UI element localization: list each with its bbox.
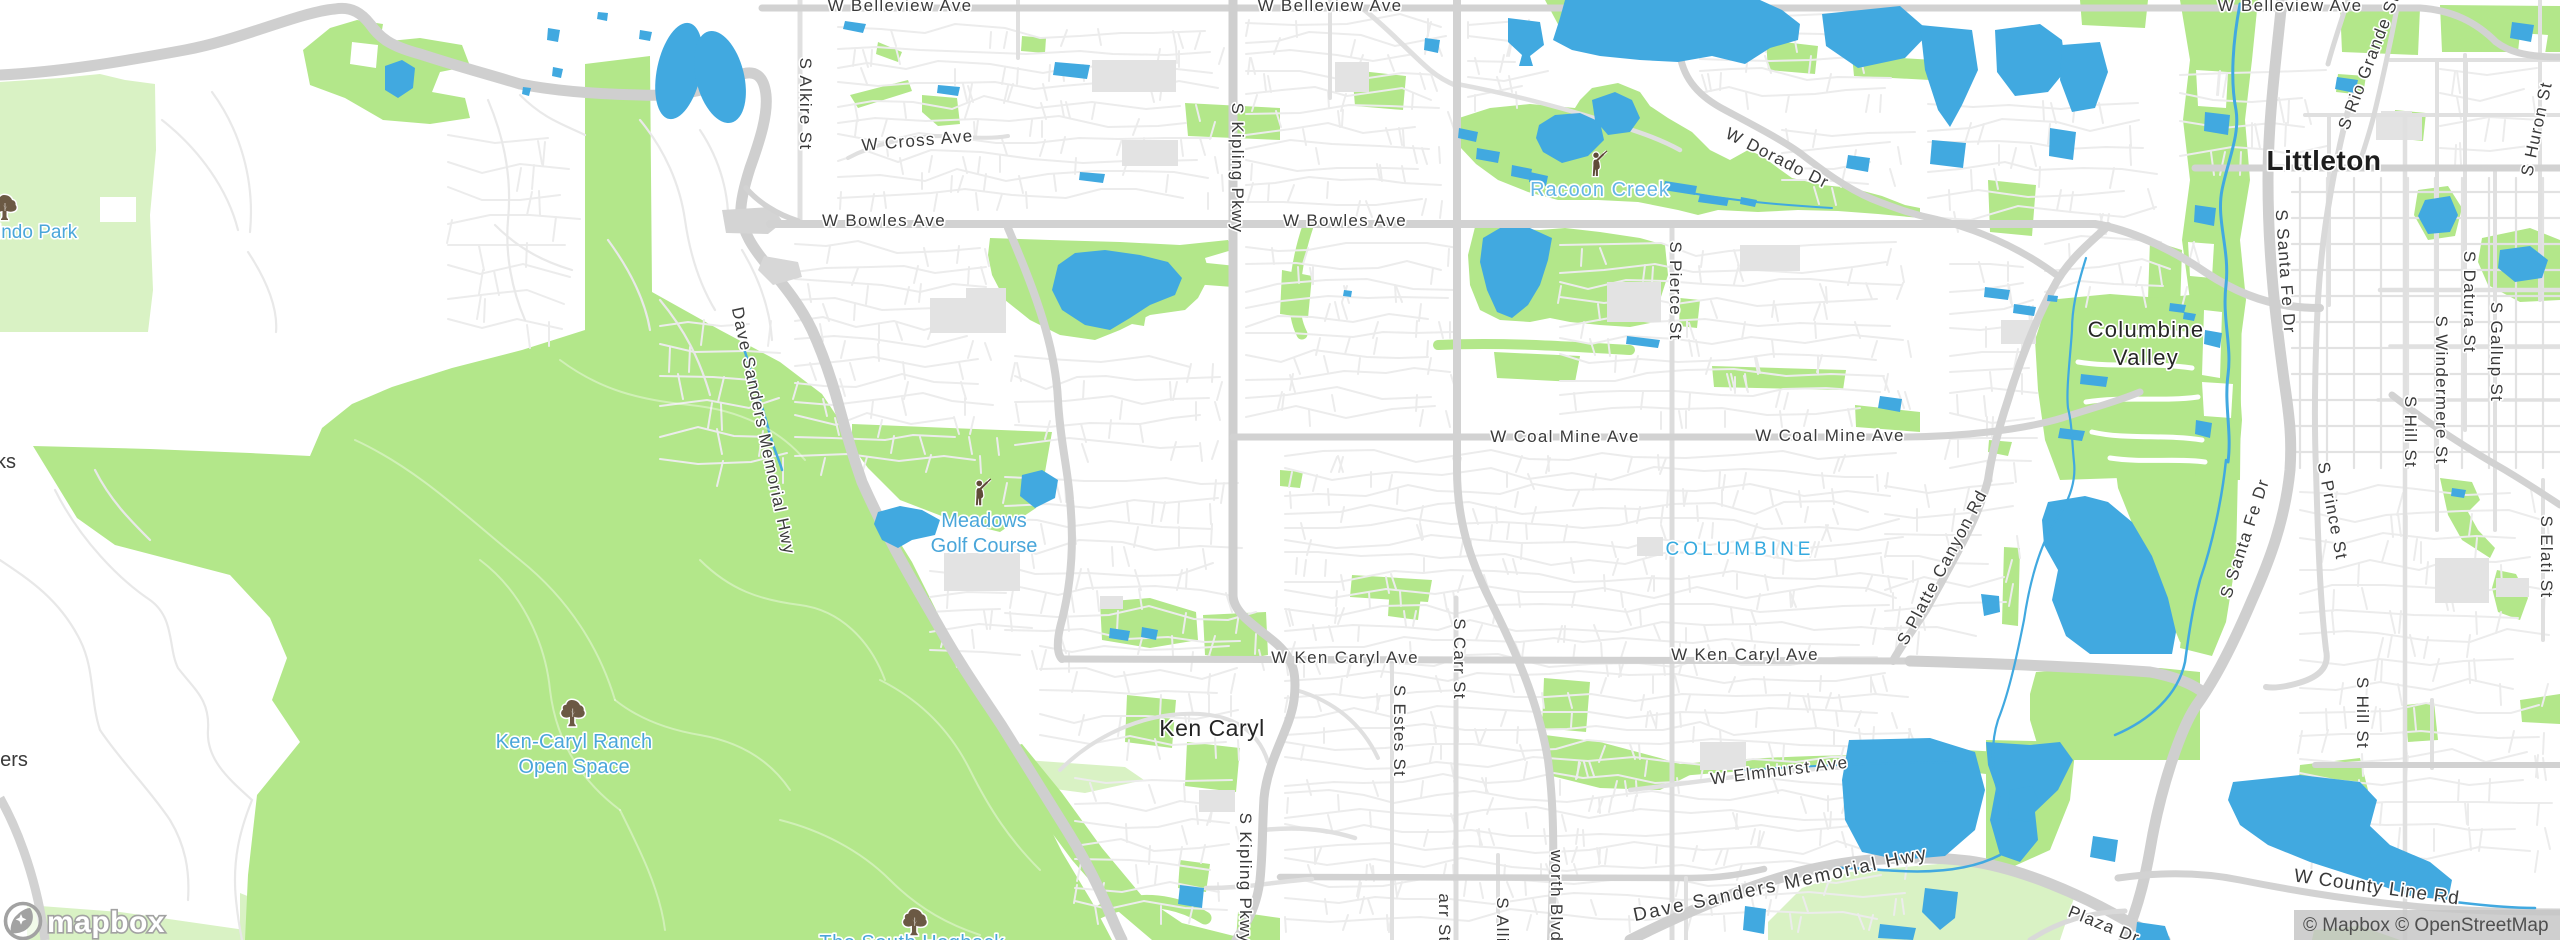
- svg-text:W Belleview Ave: W Belleview Ave: [2218, 0, 2363, 15]
- svg-text:S Windermere St: S Windermere St: [2432, 316, 2451, 465]
- svg-text:Racoon Creek: Racoon Creek: [1530, 179, 1670, 201]
- svg-text:S Gallup St: S Gallup St: [2487, 302, 2506, 402]
- svg-text:W Bowles Ave: W Bowles Ave: [822, 211, 946, 230]
- svg-text:© Mapbox © OpenStreetMap: © Mapbox © OpenStreetMap: [2303, 915, 2549, 936]
- svg-text:W Coal Mine Ave: W Coal Mine Ave: [1755, 426, 1905, 445]
- svg-text:ers: ers: [0, 749, 28, 771]
- svg-text:S Estes St: S Estes St: [1390, 685, 1409, 777]
- svg-text:W Coal Mine Ave: W Coal Mine Ave: [1490, 427, 1640, 446]
- svg-text:The South Hogback: The South Hogback: [819, 932, 1005, 940]
- svg-text:S Allis: S Allis: [1493, 897, 1512, 940]
- svg-text:Ken Caryl: Ken Caryl: [1159, 715, 1264, 741]
- svg-text:S Datura St: S Datura St: [2460, 251, 2479, 353]
- svg-text:worth Blvd: worth Blvd: [1547, 849, 1566, 940]
- svg-text:S Kipling Pkwy: S Kipling Pkwy: [1236, 813, 1255, 940]
- svg-text:W Belleview Ave: W Belleview Ave: [828, 0, 973, 15]
- svg-text:Columbine: Columbine: [2088, 317, 2205, 342]
- svg-text:arr St: arr St: [1435, 893, 1454, 940]
- svg-text:Valley: Valley: [2113, 345, 2179, 370]
- svg-text:W Bowles Ave: W Bowles Ave: [1283, 211, 1407, 230]
- svg-text:Ken-Caryl Ranch: Ken-Caryl Ranch: [496, 731, 653, 753]
- svg-text:W Ken Caryl Ave: W Ken Caryl Ave: [1271, 648, 1419, 667]
- svg-text:Meadows: Meadows: [941, 510, 1027, 532]
- svg-text:indo Park: indo Park: [0, 222, 78, 243]
- svg-text:S Alkire St: S Alkire St: [796, 58, 815, 151]
- svg-text:S Kipling Pkwy: S Kipling Pkwy: [1228, 103, 1247, 234]
- svg-text:Littleton: Littleton: [2267, 145, 2382, 176]
- svg-text:mapbox: mapbox: [47, 906, 165, 939]
- svg-text:COLUMBINE: COLUMBINE: [1666, 539, 1815, 560]
- svg-text:S Hill St: S Hill St: [2353, 677, 2372, 749]
- svg-text:W Ken Caryl Ave: W Ken Caryl Ave: [1671, 645, 1819, 664]
- svg-text:Golf Course: Golf Course: [931, 535, 1038, 557]
- svg-text:S Hill St: S Hill St: [2401, 396, 2420, 468]
- svg-text:W Belleview Ave: W Belleview Ave: [1258, 0, 1403, 15]
- svg-text:ks: ks: [0, 451, 16, 473]
- svg-text:S Pierce St: S Pierce St: [1666, 241, 1685, 340]
- svg-text:S Carr St: S Carr St: [1450, 618, 1469, 700]
- svg-text:Open Space: Open Space: [518, 756, 629, 778]
- svg-text:S Elati St: S Elati St: [2537, 516, 2556, 599]
